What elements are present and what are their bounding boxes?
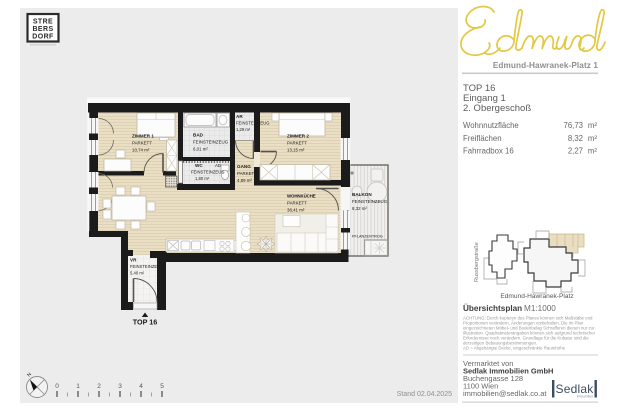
svg-text:Fahrradbox 16: Fahrradbox 16 (463, 147, 514, 156)
svg-text:3: 3 (118, 383, 122, 390)
svg-text:PARKETT: PARKETT (132, 141, 152, 146)
svg-text:BAD: BAD (193, 133, 204, 138)
svg-text:ZIMMER 1: ZIMMER 1 (132, 134, 154, 139)
svg-text:ZIMMER 2: ZIMMER 2 (287, 134, 309, 139)
svg-text:2,27: 2,27 (568, 147, 583, 156)
svg-text:AR: AR (236, 114, 243, 119)
svg-text:4: 4 (139, 383, 143, 390)
svg-text:PARKETT: PARKETT (287, 201, 307, 206)
svg-text:2. Obergeschoß: 2. Obergeschoß (463, 103, 531, 114)
svg-text:Freiflächen: Freiflächen (463, 134, 502, 143)
svg-text:PARKETT: PARKETT (237, 171, 257, 176)
svg-text:10,74 m²: 10,74 m² (132, 148, 150, 153)
svg-text:FEINSTEINZEUG: FEINSTEINZEUG (130, 264, 164, 269)
svg-text:8,32 m²: 8,32 m² (352, 206, 367, 211)
svg-text:FEINSTEINZEUG: FEINSTEINZEUG (193, 140, 229, 145)
svg-text:1: 1 (76, 383, 80, 390)
svg-text:m²: m² (588, 134, 597, 143)
svg-text:8,32: 8,32 (568, 134, 583, 143)
svg-text:13,15 m²: 13,15 m² (287, 148, 305, 153)
svg-text:1,29 m²: 1,29 m² (236, 127, 251, 132)
svg-text:WC: WC (195, 163, 203, 168)
svg-text:38,41 m²: 38,41 m² (287, 208, 305, 213)
svg-text:5: 5 (160, 383, 164, 390)
svg-text:immobilien@sedlak.co.at: immobilien@sedlak.co.at (463, 389, 547, 398)
svg-text:GANG: GANG (237, 164, 251, 169)
svg-text:2: 2 (97, 383, 101, 390)
svg-text:6,01 m²: 6,01 m² (193, 147, 208, 152)
svg-text:FEINSTEINZEUG: FEINSTEINZEUG (191, 170, 225, 175)
svg-text:1,80 m²: 1,80 m² (195, 176, 210, 181)
svg-text:DORF: DORF (32, 34, 54, 41)
svg-text:Stand 02.04.2025: Stand 02.04.2025 (397, 391, 452, 398)
svg-text:Edmund-Hawranek-Platz 1: Edmund-Hawranek-Platz 1 (493, 61, 598, 70)
svg-text:AD = Abgehängte Decke, eingesc: AD = Abgehängte Decke, eingeschränkte Ra… (463, 346, 566, 351)
svg-text:Übersichtsplan: Übersichtsplan (463, 303, 522, 313)
svg-text:Edmund-Hawranek-Platz: Edmund-Hawranek-Platz (500, 293, 573, 300)
svg-text:5,40 m²: 5,40 m² (130, 271, 145, 276)
svg-text:STRE: STRE (33, 19, 53, 26)
svg-text:m²: m² (588, 121, 597, 130)
svg-text:FEINSTEINZEUG: FEINSTEINZEUG (236, 121, 270, 126)
svg-text:M1:1000: M1:1000 (524, 304, 556, 313)
svg-text:Immobilien: Immobilien (577, 395, 594, 399)
svg-text:TOP 16: TOP 16 (133, 318, 158, 327)
svg-text:0: 0 (55, 383, 59, 390)
svg-text:Russbergstraße: Russbergstraße (474, 242, 480, 282)
svg-text:BALKON: BALKON (352, 192, 372, 197)
svg-text:WOHNKÜCHE: WOHNKÜCHE (287, 194, 316, 199)
svg-text:FEINSTEINZEUG: FEINSTEINZEUG (352, 199, 388, 204)
svg-text:PFLANZENTROG: PFLANZENTROG (352, 235, 383, 239)
svg-text:PARKETT: PARKETT (287, 141, 307, 146)
svg-text:AD: AD (215, 163, 221, 168)
svg-text:m²: m² (588, 147, 597, 156)
svg-text:VR: VR (130, 258, 137, 263)
svg-text:BERS: BERS (32, 26, 53, 33)
svg-text:Wohnnutzfläche: Wohnnutzfläche (463, 121, 519, 130)
svg-text:76,73: 76,73 (563, 121, 583, 130)
svg-text:4,89 m²: 4,89 m² (237, 178, 252, 183)
